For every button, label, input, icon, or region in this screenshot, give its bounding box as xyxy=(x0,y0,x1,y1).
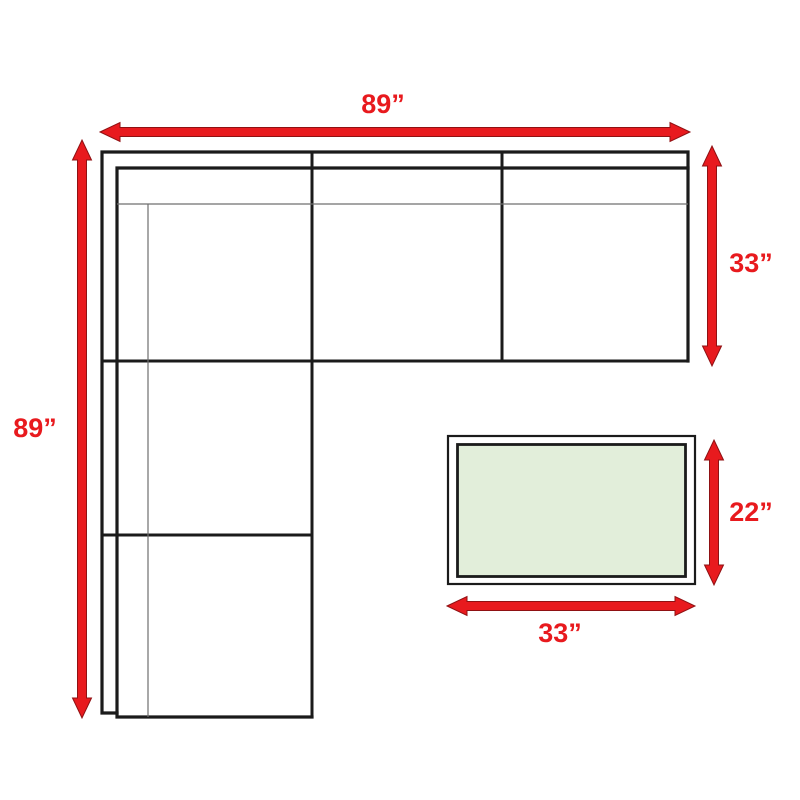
sofa-depth-label: 33” xyxy=(729,248,773,278)
table-depth-arrow xyxy=(705,440,724,585)
table-depth-label: 22” xyxy=(729,497,773,527)
sofa-length-arrow xyxy=(73,140,92,718)
table-plan xyxy=(448,436,695,584)
sofa-width-label: 89” xyxy=(361,89,405,119)
dimension-annotations: 89” 33” 89” 22” 33” xyxy=(13,89,773,718)
diagram-canvas: 89” 33” 89” 22” 33” xyxy=(0,0,800,800)
table-width-label: 33” xyxy=(538,618,582,648)
sofa-plan xyxy=(102,152,688,717)
sofa-length-label: 89” xyxy=(13,413,57,443)
sofa-back-arm-outline xyxy=(102,152,688,713)
table-top xyxy=(458,445,686,577)
sofa-width-arrow xyxy=(100,123,690,142)
table-width-arrow xyxy=(447,597,695,616)
sofa-depth-arrow xyxy=(703,146,722,366)
dimension-diagram: 89” 33” 89” 22” 33” xyxy=(0,0,800,800)
